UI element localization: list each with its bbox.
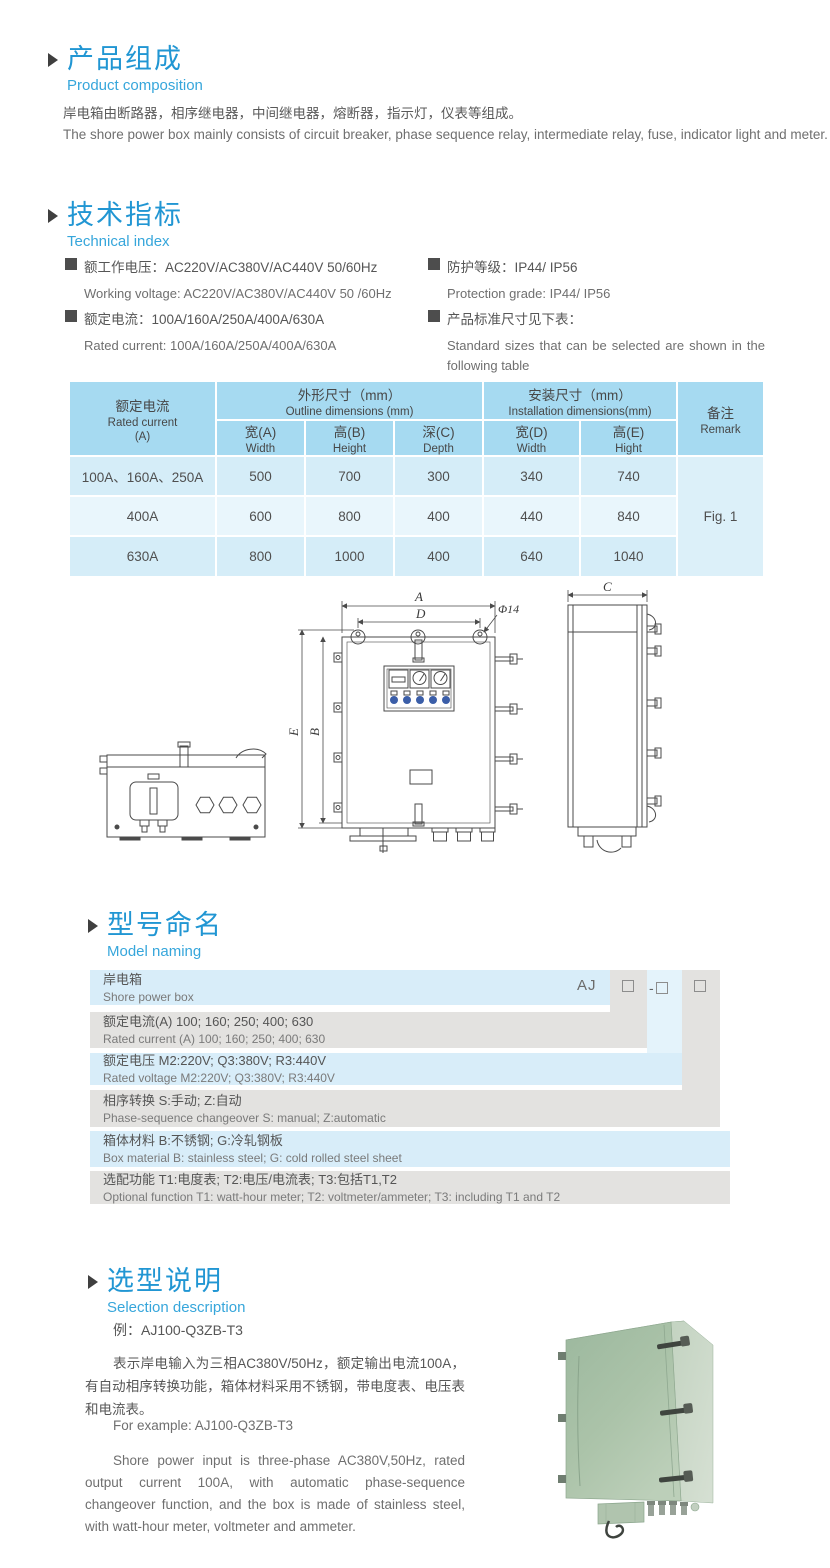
model-row-rated-voltage: 额定电压 M2:220V; Q3:380V; R3:440V Rated vol… — [90, 1053, 682, 1085]
square-bullet-icon — [428, 258, 440, 270]
table-cell: 400 — [395, 537, 482, 576]
dim-label-E: E — [286, 728, 301, 737]
bottom-pedestal — [598, 1502, 644, 1524]
selection-example-zh: 例：AJ100-Q3ZB-T3 — [113, 1320, 243, 1340]
dash: - — [649, 980, 654, 996]
selection-paragraph-zh: 表示岸电输入为三相AC380V/50Hz，额定输出电流100A，有自动相序转换功… — [85, 1352, 465, 1421]
dimensions-table: 额定电流 Rated current (A) 外形尺寸（mm） Outline … — [70, 382, 763, 576]
table-cell: 400 — [395, 497, 482, 535]
selection-example-en: For example: AJ100-Q3ZB-T3 — [113, 1418, 293, 1433]
dim-label-A: A — [414, 589, 423, 604]
placeholder-box-icon — [656, 982, 668, 994]
spec-zh-text: 防护等级：IP44/ IP56 — [447, 256, 578, 276]
section-arrow-icon — [48, 209, 58, 223]
group-header-outline-dimensions: 外形尺寸（mm） Outline dimensions (mm) — [217, 382, 482, 419]
model-code-box-2: - — [649, 980, 668, 996]
spec-protection-grade: 防护等级：IP44/ IP56 Protection grade: IP44/ … — [428, 256, 768, 304]
selection-paragraph-en: Shore power input is three-phase AC380V,… — [85, 1450, 465, 1538]
model-code-box-1 — [622, 980, 634, 992]
col-header-remark: 备注 Remark — [678, 382, 763, 455]
subcol-depth-c: 深(C)Depth — [395, 421, 482, 455]
spec-rated-current: 额定电流：100A/160A/250A/400A/630A Rated curr… — [65, 308, 425, 356]
section-title-en: Technical index — [67, 233, 183, 250]
model-naming-table: 岸电箱 Shore power box 额定电流(A) 100; 160; 25… — [90, 966, 830, 1206]
group-header-installation-dimensions: 安装尺寸（mm） Installation dimensions(mm) — [484, 382, 676, 419]
model-row-phase-sequence: 相序转换 S:手动; Z:自动 Phase-sequence changeove… — [90, 1090, 720, 1127]
technical-drawing-figure1: A D Φ14 E B — [60, 578, 780, 888]
hinges — [334, 653, 342, 812]
model-prefix: AJ — [577, 977, 597, 994]
dim-label-hole-dia: Φ14 — [498, 602, 519, 616]
subcol-width-d: 宽(D)Width — [484, 421, 579, 455]
dim-label-D: D — [415, 606, 426, 621]
subcol-height-b: 高(B)Height — [306, 421, 393, 455]
spec-zh-text: 额工作电压：AC220V/AC380V/AC440V 50/60Hz — [84, 256, 377, 276]
datasheet-page: 产品组成 Product composition 岸电箱由断路器，相序继电器，中… — [0, 0, 830, 1568]
subcol-height-e: 高(E)Hight — [581, 421, 676, 455]
dim-label-B: B — [307, 728, 322, 736]
spec-standard-sizes: 产品标准尺寸见下表： Standard sizes that can be se… — [428, 308, 768, 376]
placeholder-box-icon — [622, 980, 634, 992]
placeholder-box-icon — [694, 980, 706, 992]
table-cell: 500 — [217, 457, 304, 495]
section-title-zh: 型号命名 — [107, 910, 223, 940]
product-composition-text-zh: 岸电箱由断路器，相序继电器，中间继电器，熔断器，指示灯，仪表等组成。 — [63, 102, 522, 122]
section-selection-heading: 选型说明 Selection description — [88, 1266, 245, 1316]
table-cell: 300 — [395, 457, 482, 495]
table-row-current: 100A、160A、250A — [70, 457, 215, 495]
table-cell: 740 — [581, 457, 676, 495]
table-cell: 340 — [484, 457, 579, 495]
drawing-bottom-view — [100, 742, 266, 840]
table-cell: 800 — [217, 537, 304, 576]
table-row-current: 630A — [70, 537, 215, 576]
product-photo — [543, 1288, 830, 1568]
product-composition-text-en: The shore power box mainly consists of c… — [63, 127, 828, 142]
model-row-box-material: 箱体材料 B:不锈钢; G:冷轧钢板 Box material B: stain… — [90, 1131, 730, 1167]
spec-working-voltage: 额工作电压：AC220V/AC380V/AC440V 50/60Hz Worki… — [65, 256, 425, 304]
section-title-zh: 产品组成 — [67, 44, 203, 74]
section-title-zh: 技术指标 — [67, 200, 183, 230]
hinge — [558, 1414, 566, 1422]
section-title-zh: 选型说明 — [107, 1266, 245, 1296]
table-cell-remark: Fig. 1 — [678, 457, 763, 576]
cable-glands — [647, 1501, 699, 1516]
table-cell: 1000 — [306, 537, 393, 576]
square-bullet-icon — [65, 258, 77, 270]
spec-en-text: Working voltage: AC220V/AC380V/AC440V 50… — [84, 284, 425, 304]
section-model-naming-heading: 型号命名 Model naming — [88, 910, 223, 960]
model-row-rated-current: 额定电流(A) 100; 160; 250; 400; 630 Rated cu… — [90, 1012, 647, 1048]
spec-en-text: Standard sizes that can be selected are … — [447, 336, 765, 376]
square-bullet-icon — [65, 310, 77, 322]
section-title-en: Selection description — [107, 1299, 245, 1316]
hinge — [558, 1352, 566, 1360]
subcol-width-a: 宽(A)Width — [217, 421, 304, 455]
hinge — [558, 1475, 566, 1483]
product-box — [558, 1321, 713, 1537]
table-cell: 1040 — [581, 537, 676, 576]
table-cell: 700 — [306, 457, 393, 495]
square-bullet-icon — [428, 310, 440, 322]
section-product-composition-heading: 产品组成 Product composition — [48, 44, 203, 94]
table-cell: 800 — [306, 497, 393, 535]
dim-label-C: C — [603, 579, 612, 594]
spec-en-text: Rated current: 100A/160A/250A/400A/630A — [84, 336, 425, 356]
model-code-box-3 — [694, 980, 706, 992]
section-arrow-icon — [88, 1275, 98, 1289]
section-technical-index-heading: 技术指标 Technical index — [48, 200, 183, 250]
indicator-lights — [390, 691, 450, 704]
section-title-en: Product composition — [67, 77, 203, 94]
col-header-rated-current: 额定电流 Rated current (A) — [70, 382, 215, 455]
model-row-optional-function: 选配功能 T1:电度表; T2:电压/电流表; T3:包括T1,T2 Optio… — [90, 1171, 730, 1204]
spec-en-text: Protection grade: IP44/ IP56 — [447, 284, 768, 304]
table-cell: 600 — [217, 497, 304, 535]
side-latches — [647, 614, 661, 822]
table-cell: 640 — [484, 537, 579, 576]
drawing-front-view — [334, 630, 523, 853]
dimension-lines — [298, 601, 497, 828]
spec-zh-text: 额定电流：100A/160A/250A/400A/630A — [84, 308, 324, 328]
section-title-en: Model naming — [107, 943, 223, 960]
table-row-current: 400A — [70, 497, 215, 535]
section-arrow-icon — [48, 53, 58, 67]
latches — [495, 654, 523, 814]
section-arrow-icon — [88, 919, 98, 933]
table-cell: 840 — [581, 497, 676, 535]
nameplate — [410, 770, 432, 784]
model-row-shore-power-box: 岸电箱 Shore power box — [90, 970, 610, 1005]
table-cell: 440 — [484, 497, 579, 535]
spec-zh-text: 产品标准尺寸见下表： — [447, 308, 582, 328]
drawing-side-view — [568, 605, 661, 852]
